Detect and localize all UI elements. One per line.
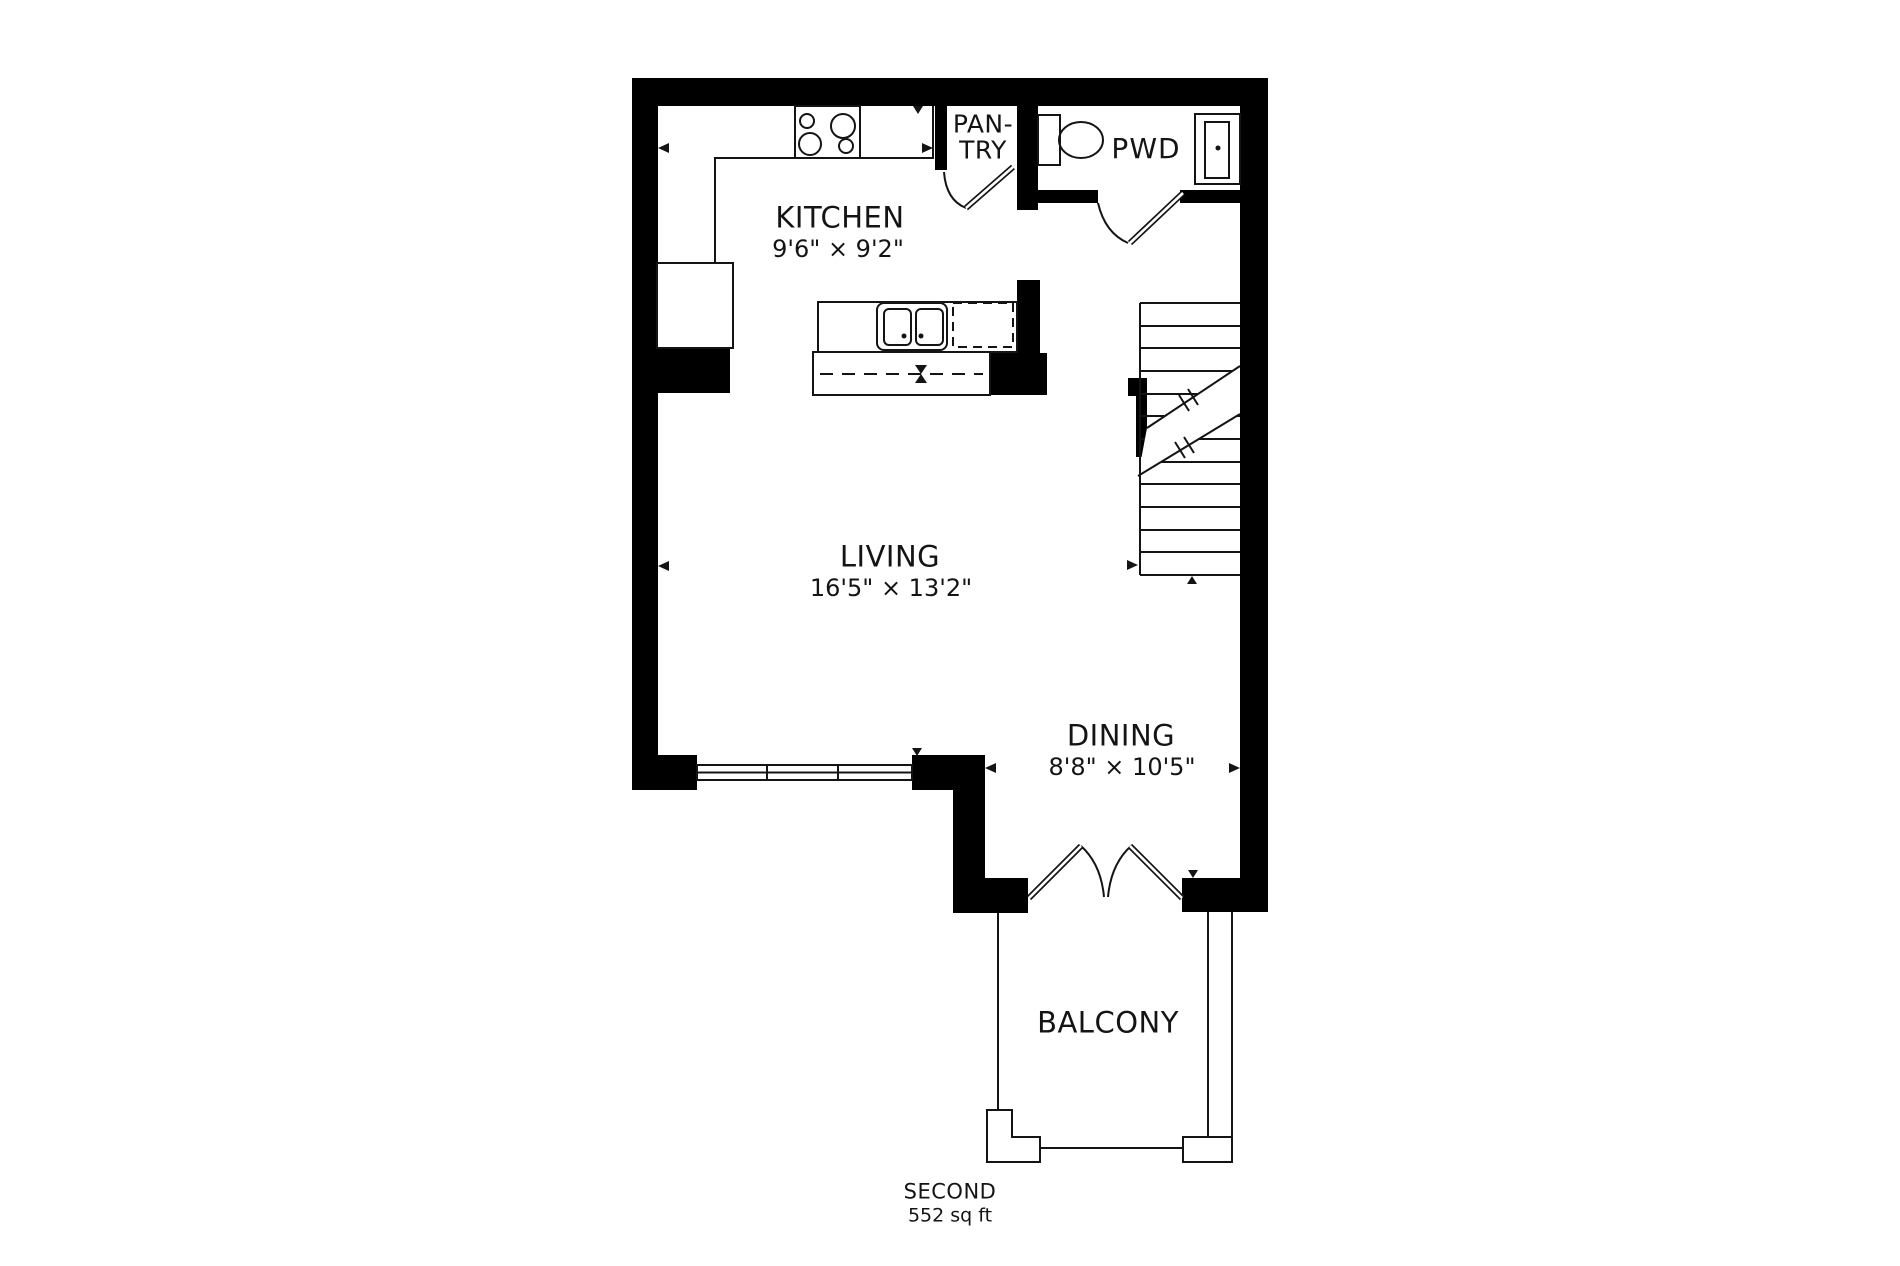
sink-drain-icon (902, 334, 907, 339)
living-dimensions: 16'5" × 13'2" (810, 576, 972, 602)
wall-left (632, 78, 658, 790)
dimension-arrow-icon (1187, 576, 1197, 584)
pantry-door-arc (944, 172, 966, 208)
living-label: LIVING (840, 541, 940, 572)
marker-icon (915, 374, 927, 383)
dimension-arrow-icon (912, 748, 922, 756)
dimension-arrow-icon (1188, 870, 1198, 878)
wall-window-jamb-left (632, 755, 697, 790)
window-living (697, 765, 912, 780)
balcony-label: BALCONY (1037, 1007, 1179, 1038)
stairs (1138, 303, 1240, 575)
wall-window-jamb-right (912, 755, 985, 790)
burner-icon (839, 139, 853, 153)
fridge-icon (657, 263, 733, 348)
railing-post-left (987, 1110, 1040, 1162)
wall-top (632, 78, 1268, 106)
sink-drain-icon (919, 334, 924, 339)
wall-pwd-south-right (1180, 190, 1240, 203)
pantry-label-line2: TRY (959, 137, 1007, 164)
dimension-arrow-icon (913, 106, 923, 114)
burner-icon (831, 114, 855, 138)
wall-balcony-jamb-left (953, 878, 1028, 913)
marker-icon (915, 365, 927, 374)
dimension-arrow-icon (985, 763, 996, 773)
sink-basin-icon (916, 309, 943, 345)
wall-balcony-jamb-right (1182, 878, 1268, 912)
dimension-arrow-icon (658, 561, 669, 571)
dimension-arrow-icon (1127, 560, 1138, 570)
vanity-drain-icon (1216, 146, 1221, 151)
sink-basin-icon (884, 309, 911, 345)
wall-island-vertical (1017, 280, 1040, 355)
wall-pantry-jamb (935, 104, 947, 170)
toilet-bowl-icon (1059, 122, 1103, 158)
wall-dining-west (953, 790, 985, 878)
balcony-door-arc-left (1081, 846, 1104, 897)
kitchen-label: KITCHEN (775, 202, 904, 233)
floor-plan-graphics (0, 0, 1900, 1266)
kitchen-dimensions: 9'6" × 9'2" (772, 237, 904, 263)
wall-island-horizontal (990, 353, 1047, 395)
floor-plan: KITCHEN 9'6" × 9'2" PAN- TRY PWD LIVING … (0, 0, 1900, 1266)
dining-label: DINING (1067, 720, 1175, 751)
stair-break-band (1138, 366, 1240, 476)
dimension-arrow-icon (658, 143, 669, 153)
dishwasher-icon (953, 303, 1013, 347)
wall-right (1240, 78, 1268, 912)
burner-icon (800, 114, 814, 128)
dining-dimensions: 8'8" × 10'5" (1049, 755, 1196, 781)
pwd-label: PWD (1111, 134, 1180, 164)
floor-area-label: 552 sq ft (908, 1206, 992, 1227)
railing-post-right (1183, 1137, 1232, 1162)
dimension-arrow-icon (922, 143, 933, 153)
balcony-door-arc-right (1108, 846, 1131, 897)
floor-name-label: SECOND (904, 1181, 997, 1204)
pantry-label-line1: PAN- (953, 111, 1013, 138)
wall-pwd-south-left (1017, 190, 1098, 203)
toilet-tank-icon (1038, 115, 1060, 165)
dimension-arrow-icon (1229, 763, 1240, 773)
wall-left-jog (658, 348, 730, 393)
burner-icon (799, 133, 821, 155)
pwd-door-arc (1098, 203, 1128, 243)
